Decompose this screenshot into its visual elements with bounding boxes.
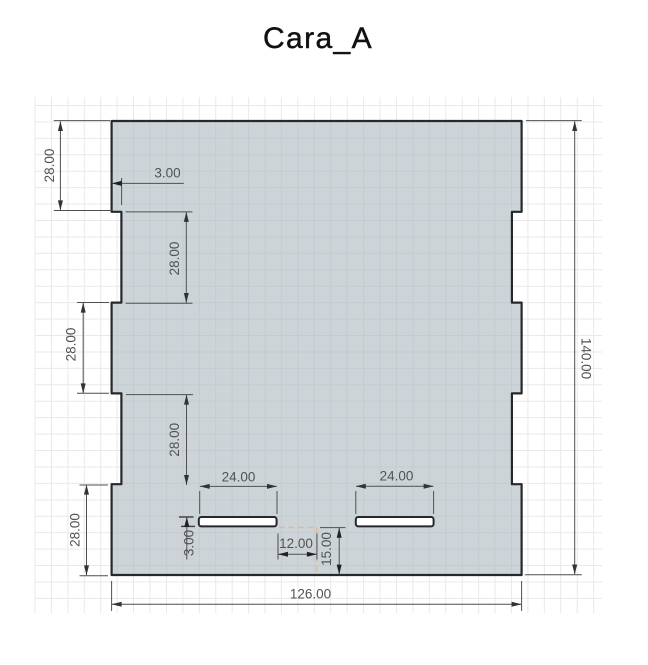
svg-text:126.00: 126.00: [290, 587, 331, 602]
svg-text:28.00: 28.00: [64, 328, 79, 362]
svg-text:28.00: 28.00: [167, 242, 182, 276]
svg-text:28.00: 28.00: [68, 513, 83, 547]
svg-text:28.00: 28.00: [167, 423, 182, 457]
svg-text:Cara_A: Cara_A: [263, 22, 373, 55]
svg-text:15.00: 15.00: [319, 532, 334, 566]
svg-text:3.00: 3.00: [182, 530, 197, 556]
svg-text:24.00: 24.00: [380, 469, 414, 484]
svg-text:28.00: 28.00: [42, 149, 57, 183]
svg-text:24.00: 24.00: [222, 470, 256, 485]
svg-text:140.00: 140.00: [579, 338, 594, 379]
svg-text:12.00: 12.00: [279, 536, 313, 551]
svg-text:3.00: 3.00: [154, 166, 180, 181]
